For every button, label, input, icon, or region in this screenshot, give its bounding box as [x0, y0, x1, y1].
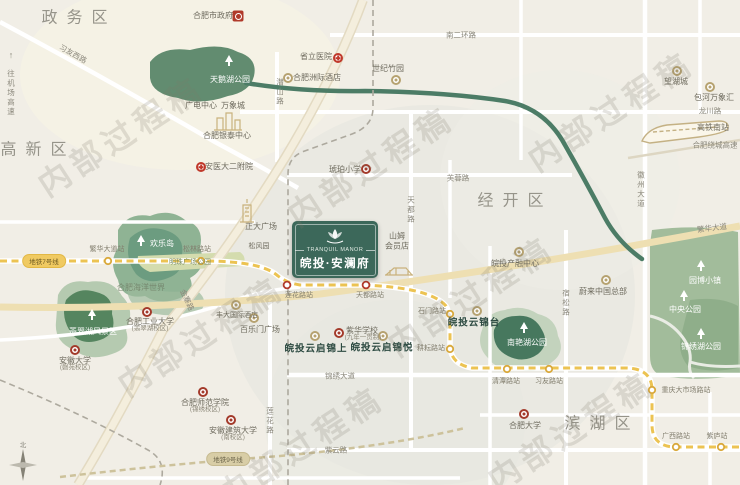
district-label-gaoxin: 高新区: [0, 140, 75, 159]
project-name: 皖投·安澜府: [300, 255, 370, 271]
tree-icon: [136, 235, 146, 247]
road-label-nan-er-huan: 南二环路: [446, 31, 476, 40]
school-icon: [334, 328, 344, 338]
poi-label-yunqi-jinshang: 皖投云启锦上: [284, 343, 347, 354]
location-map: 政务区 高新区 经开区 滨湖区 习友西路 南二环路 潜山路 芙蓉路 天都路 徽州…: [0, 0, 740, 485]
poi-sublabel-ahjzu: (南校区): [221, 434, 245, 442]
park-label-feicui: 翡翠湖风景区: [69, 327, 117, 337]
poi-label-gdzx: 广电中心: [185, 101, 217, 111]
park-label-huanledao: 欢乐岛: [150, 239, 174, 249]
poi-label-wxc: 万象城: [221, 101, 245, 111]
station-dot-dashichang: [649, 387, 655, 393]
road-label-jinxiu: 锦绣大道: [325, 372, 355, 381]
poi-dot-icon: [514, 247, 524, 257]
poi-label-ayd2: 安医大二附院: [205, 162, 253, 172]
north-arrow-airport: ↑: [9, 50, 14, 60]
poi-dot-icon: [391, 75, 401, 85]
road-label-huizhou: 徽州大道: [637, 171, 646, 209]
school-icon: [70, 345, 80, 355]
building-icon: [213, 110, 243, 132]
station-dot-shimen: [447, 311, 453, 317]
park-label-nanyan-lake: 南艳湖公园: [507, 338, 547, 348]
station-label-tiandu: 天都路站: [356, 292, 384, 300]
project-brand: TRANQUIL MANOR: [307, 247, 364, 253]
hospital-icon: [333, 53, 343, 63]
poi-label-sams-club: 山姆 会员店: [385, 231, 409, 250]
government-icon: [233, 11, 244, 22]
tree-icon: [679, 290, 689, 302]
park-label-ocean-world: 合肥海洋世界: [117, 283, 165, 293]
poi-sublabel-hfut: (翡翠湖校区): [132, 325, 169, 333]
poi-label-intercontinental: 合肥洲际酒店: [293, 73, 341, 83]
road-label-lianhua: 莲花路: [266, 407, 275, 436]
station-label-dashichang: 重庆大市场路站: [662, 387, 711, 395]
poi-sublabel-hfnu: (锦绣校区): [190, 406, 220, 414]
poi-dot-icon: [601, 275, 611, 285]
poi-label-yunqi-jinyue: 皖投云启锦悦: [350, 342, 413, 353]
metro-line7-badge: 地铁7号线: [22, 254, 66, 268]
hotel-icon: [231, 300, 241, 310]
road-label-qianshan: 潜山路: [276, 78, 285, 107]
station-dot-fanhua: [105, 258, 111, 264]
district-label-jingkai: 经开区: [477, 191, 552, 210]
compass-north-label: 北: [20, 439, 27, 449]
station-label-qingtan: 清潭路站: [492, 378, 520, 386]
metro-line9-badge: 地铁9号线: [206, 452, 250, 466]
school-icon: [198, 387, 208, 397]
road-label-furong: 芙蓉路: [447, 174, 470, 183]
road-label-to-airport: 往机场高速: [7, 69, 16, 117]
poi-label-yunjintai: 皖投云锦台: [448, 317, 501, 328]
poi-label-hfu: 合肥大学: [509, 421, 541, 431]
building-icon: [384, 259, 414, 277]
project-dot-icon: [310, 331, 320, 341]
poi-sublabel-zihua-school: (九年一贯制): [345, 334, 382, 342]
tree-icon: [696, 328, 706, 340]
station-dot-lianhua: [284, 282, 291, 289]
hotel-icon: [283, 73, 293, 83]
district-label-zhengwu: 政务区: [41, 8, 116, 27]
road-label-tiandu: 天都路: [407, 196, 416, 225]
poi-label-chanrong-center: 皖投产融中心: [491, 259, 539, 269]
poi-label-sfy: 松风园: [249, 243, 270, 251]
poi-label-south-rail-station: 高铁南站: [697, 123, 729, 133]
poi-label-blm: 百乐门广场: [240, 325, 280, 335]
district-label-binhu: 滨湖区: [564, 414, 639, 433]
poi-label-sjzy: 世纪竹园: [372, 64, 404, 74]
station-dot-tiandu: [363, 282, 370, 289]
school-icon: [361, 164, 371, 174]
station-label-zilu: 紫庐站: [707, 433, 728, 441]
poi-sublabel-ahu: (磬苑校区): [60, 364, 90, 372]
park-label-jinxiuhu: 锦绣湖公园: [681, 342, 721, 352]
project-card: TRANQUIL MANOR 皖投·安澜府: [292, 221, 378, 278]
school-icon: [142, 307, 152, 317]
poi-dot-icon: [705, 82, 715, 92]
station-label-lianhua: 莲花路站: [285, 292, 313, 300]
brand-rule-right: [366, 250, 375, 251]
station-label-songlin: 松林路站: [183, 246, 211, 254]
project-brand-row: TRANQUIL MANOR: [295, 247, 376, 253]
station-label-guangxi: 广西路站: [662, 433, 690, 441]
school-icon: [519, 409, 529, 419]
project-dot-icon: [472, 306, 482, 316]
tree-icon: [87, 309, 97, 321]
school-icon: [226, 415, 236, 425]
station-dot-gengyun: [447, 346, 453, 352]
project-logo-icon: [323, 228, 347, 245]
compass-icon: [8, 448, 38, 482]
park-label-mingzhu-plaza: 明珠广场公园: [169, 259, 211, 267]
poi-label-fengda: 丰大国际酒店: [216, 312, 258, 320]
brand-rule-left: [295, 250, 304, 251]
road-label-raocheng: 合肥绕城高速: [693, 141, 738, 150]
poi-label-provincial-hospital: 省立医院: [300, 52, 332, 62]
station-dot-guangxi: [673, 444, 679, 450]
poi-label-bhwxh: 包河万象汇: [694, 93, 734, 103]
park-label-zhongyang: 中央公园: [669, 305, 701, 315]
park-label-yuanbo: 园博小镇: [689, 276, 721, 286]
station-label-fanhua: 繁华大道站: [90, 246, 125, 254]
road-label-longchuan: 龙川路: [699, 107, 722, 116]
station-dot-xiyou: [546, 366, 552, 372]
station-label-xiyou: 习友路站: [535, 378, 563, 386]
tree-icon: [519, 322, 529, 334]
tree-icon: [224, 55, 234, 67]
building-icon: [239, 198, 255, 224]
station-dot-qingtan: [504, 366, 510, 372]
station-label-shimen: 石门路站: [418, 308, 446, 316]
road-label-susong: 宿松路: [562, 289, 571, 318]
road-label-ziyun: 紫云路: [325, 446, 348, 455]
park-label-swan-lake: 天鹅湖公园: [210, 75, 250, 85]
poi-label-wanghucheng: 望湖城: [664, 77, 688, 87]
poi-label-zdgc: 正大广场: [245, 222, 277, 232]
tree-icon: [696, 260, 706, 272]
poi-label-nio-hq: 蔚来中国总部: [579, 287, 627, 297]
poi-label-city-gov: 合肥市政府: [193, 11, 233, 21]
poi-label-hupo-school: 琥珀小学: [329, 165, 361, 175]
poi-label-yintai: 合肥银泰中心: [203, 131, 251, 141]
station-label-gengyun: 耕耘路站: [417, 345, 445, 353]
station-dot-zilu: [718, 444, 724, 450]
poi-dot-icon: [672, 66, 682, 76]
